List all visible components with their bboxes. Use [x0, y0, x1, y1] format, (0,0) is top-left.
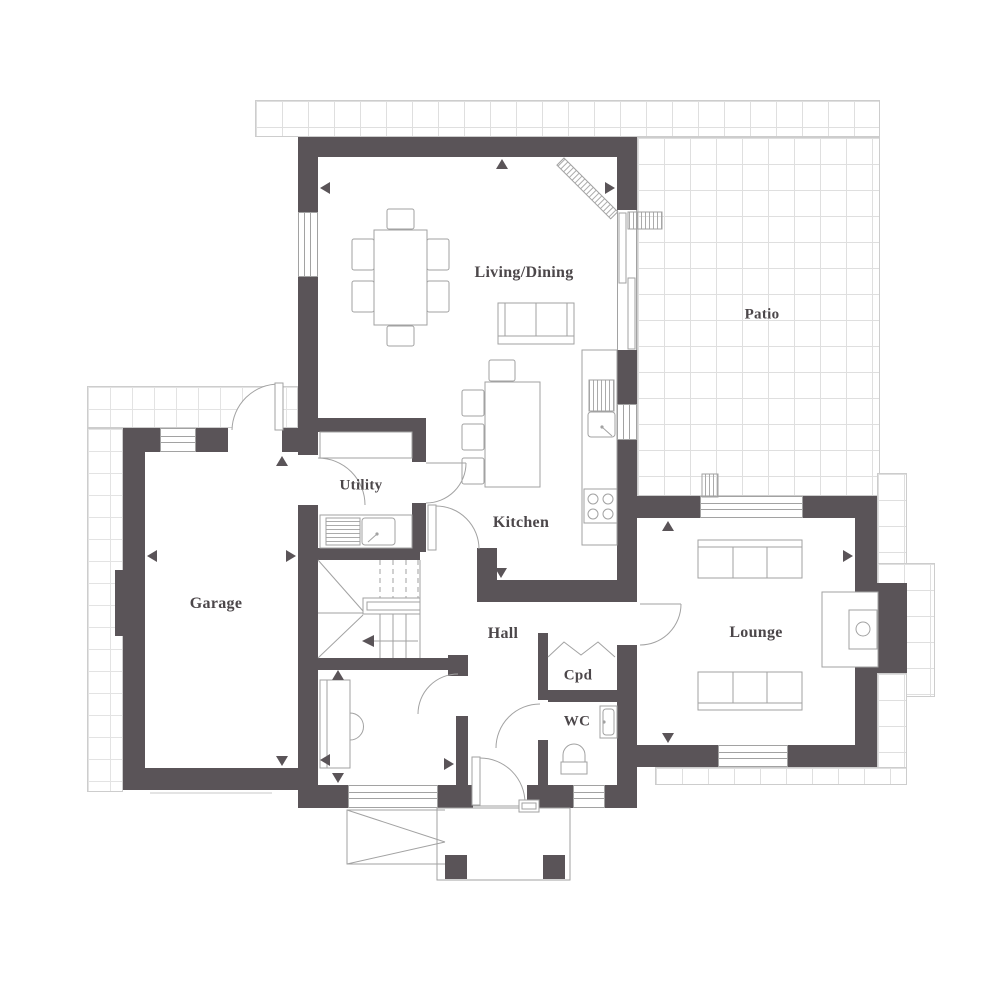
- dining-table-icon: [352, 209, 449, 346]
- utility-sink-icon: [326, 518, 395, 545]
- garage-side-door-leaf: [275, 383, 283, 430]
- vent-icon: [628, 212, 662, 229]
- wc-door-arc: [496, 704, 540, 748]
- canopy: [347, 810, 445, 864]
- sliding-door-panels: [619, 213, 635, 349]
- room-label-patio: Patio: [745, 307, 780, 324]
- stairs-icon: [318, 560, 420, 658]
- kitchen-island-icon: [462, 360, 540, 487]
- porch-post: [543, 855, 565, 879]
- hall-kitchen-door-arc: [436, 506, 479, 549]
- floor-plan: Living/Dining Patio Utility Kitchen Gara…: [0, 0, 1000, 1000]
- room-label-living-dining: Living/Dining: [474, 264, 573, 282]
- room-label-wc: WC: [564, 714, 590, 731]
- door-swings: [232, 383, 681, 806]
- room-label-lounge: Lounge: [729, 624, 782, 642]
- porch-post: [445, 855, 467, 879]
- kitchen-sink-icon: [588, 380, 615, 437]
- room-label-cupboard: Cpd: [564, 668, 592, 685]
- stairs-direction-arrow-icon: [362, 635, 374, 647]
- hob-icon: [584, 489, 617, 523]
- cupboard-bifold-doors: [548, 642, 615, 657]
- radiator-icon: [702, 474, 718, 497]
- front-door-arc: [480, 758, 525, 803]
- desk-icon: [320, 680, 364, 768]
- porch: [437, 800, 570, 880]
- sofa-icon: [498, 303, 574, 344]
- room-label-garage: Garage: [190, 595, 242, 613]
- utility-kitchen-door-arc: [426, 463, 466, 503]
- lounge-door-arc: [640, 604, 681, 645]
- toilet-icon: [561, 744, 587, 774]
- study-door-arc: [418, 674, 458, 714]
- fireplace-stove-icon: [822, 592, 878, 667]
- basin-icon: [600, 706, 617, 738]
- room-label-kitchen: Kitchen: [493, 514, 549, 532]
- plan-details: [0, 0, 1000, 1000]
- room-label-hall: Hall: [488, 625, 519, 643]
- room-label-utility: Utility: [340, 478, 383, 495]
